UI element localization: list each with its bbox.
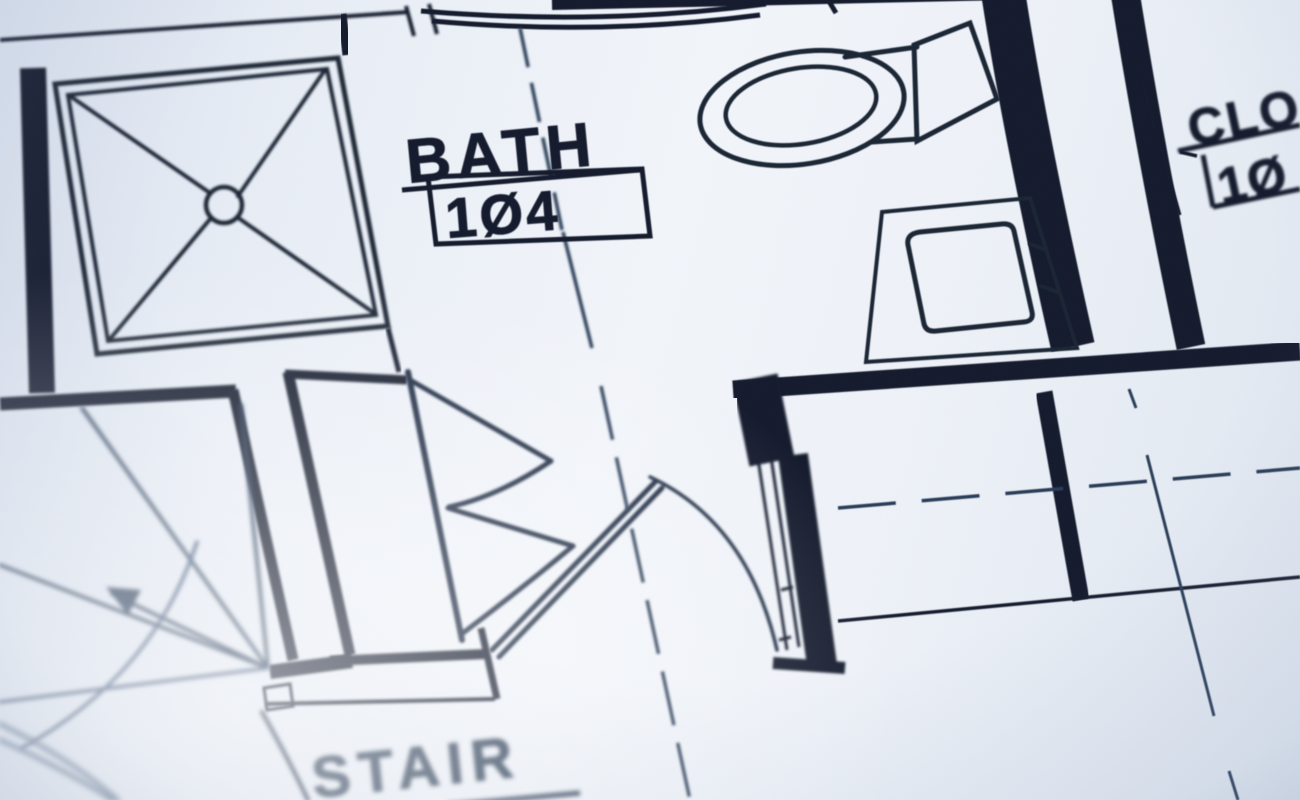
blueprint-photo: BATH 1Ø4 CLO 1Ø STAIR bbox=[0, 0, 1300, 800]
floor-plan-drawing: BATH 1Ø4 CLO 1Ø STAIR bbox=[0, 0, 1300, 800]
photo-grain-overlay bbox=[0, 0, 1300, 800]
